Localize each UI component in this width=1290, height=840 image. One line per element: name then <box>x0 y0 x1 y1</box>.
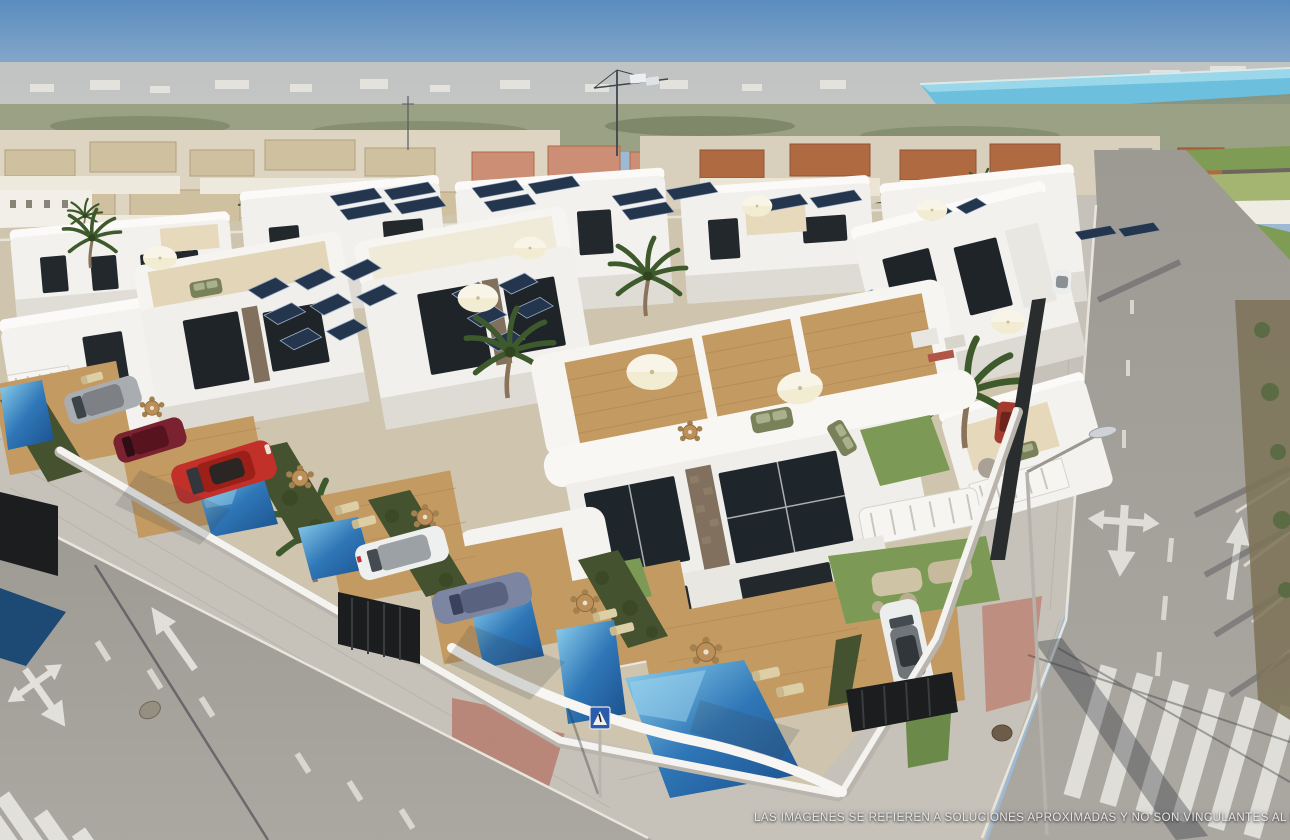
disclaimer-text: LAS IMÁGENES SE REFIEREN A SOLUCIONES AP… <box>754 812 1290 824</box>
parasol <box>917 199 948 221</box>
aerial-render-image: LAS IMÁGENES SE REFIEREN A SOLUCIONES AP… <box>0 0 1290 840</box>
parasol <box>143 246 177 270</box>
parasol <box>514 237 546 260</box>
scene-canvas <box>0 0 1290 840</box>
parasol <box>991 310 1025 334</box>
manhole-right <box>992 725 1012 741</box>
parasol <box>458 284 499 313</box>
parked-white-car-kerb <box>1052 269 1072 294</box>
parasol <box>627 354 678 390</box>
sign-pole <box>599 726 602 798</box>
parasol <box>742 195 773 217</box>
